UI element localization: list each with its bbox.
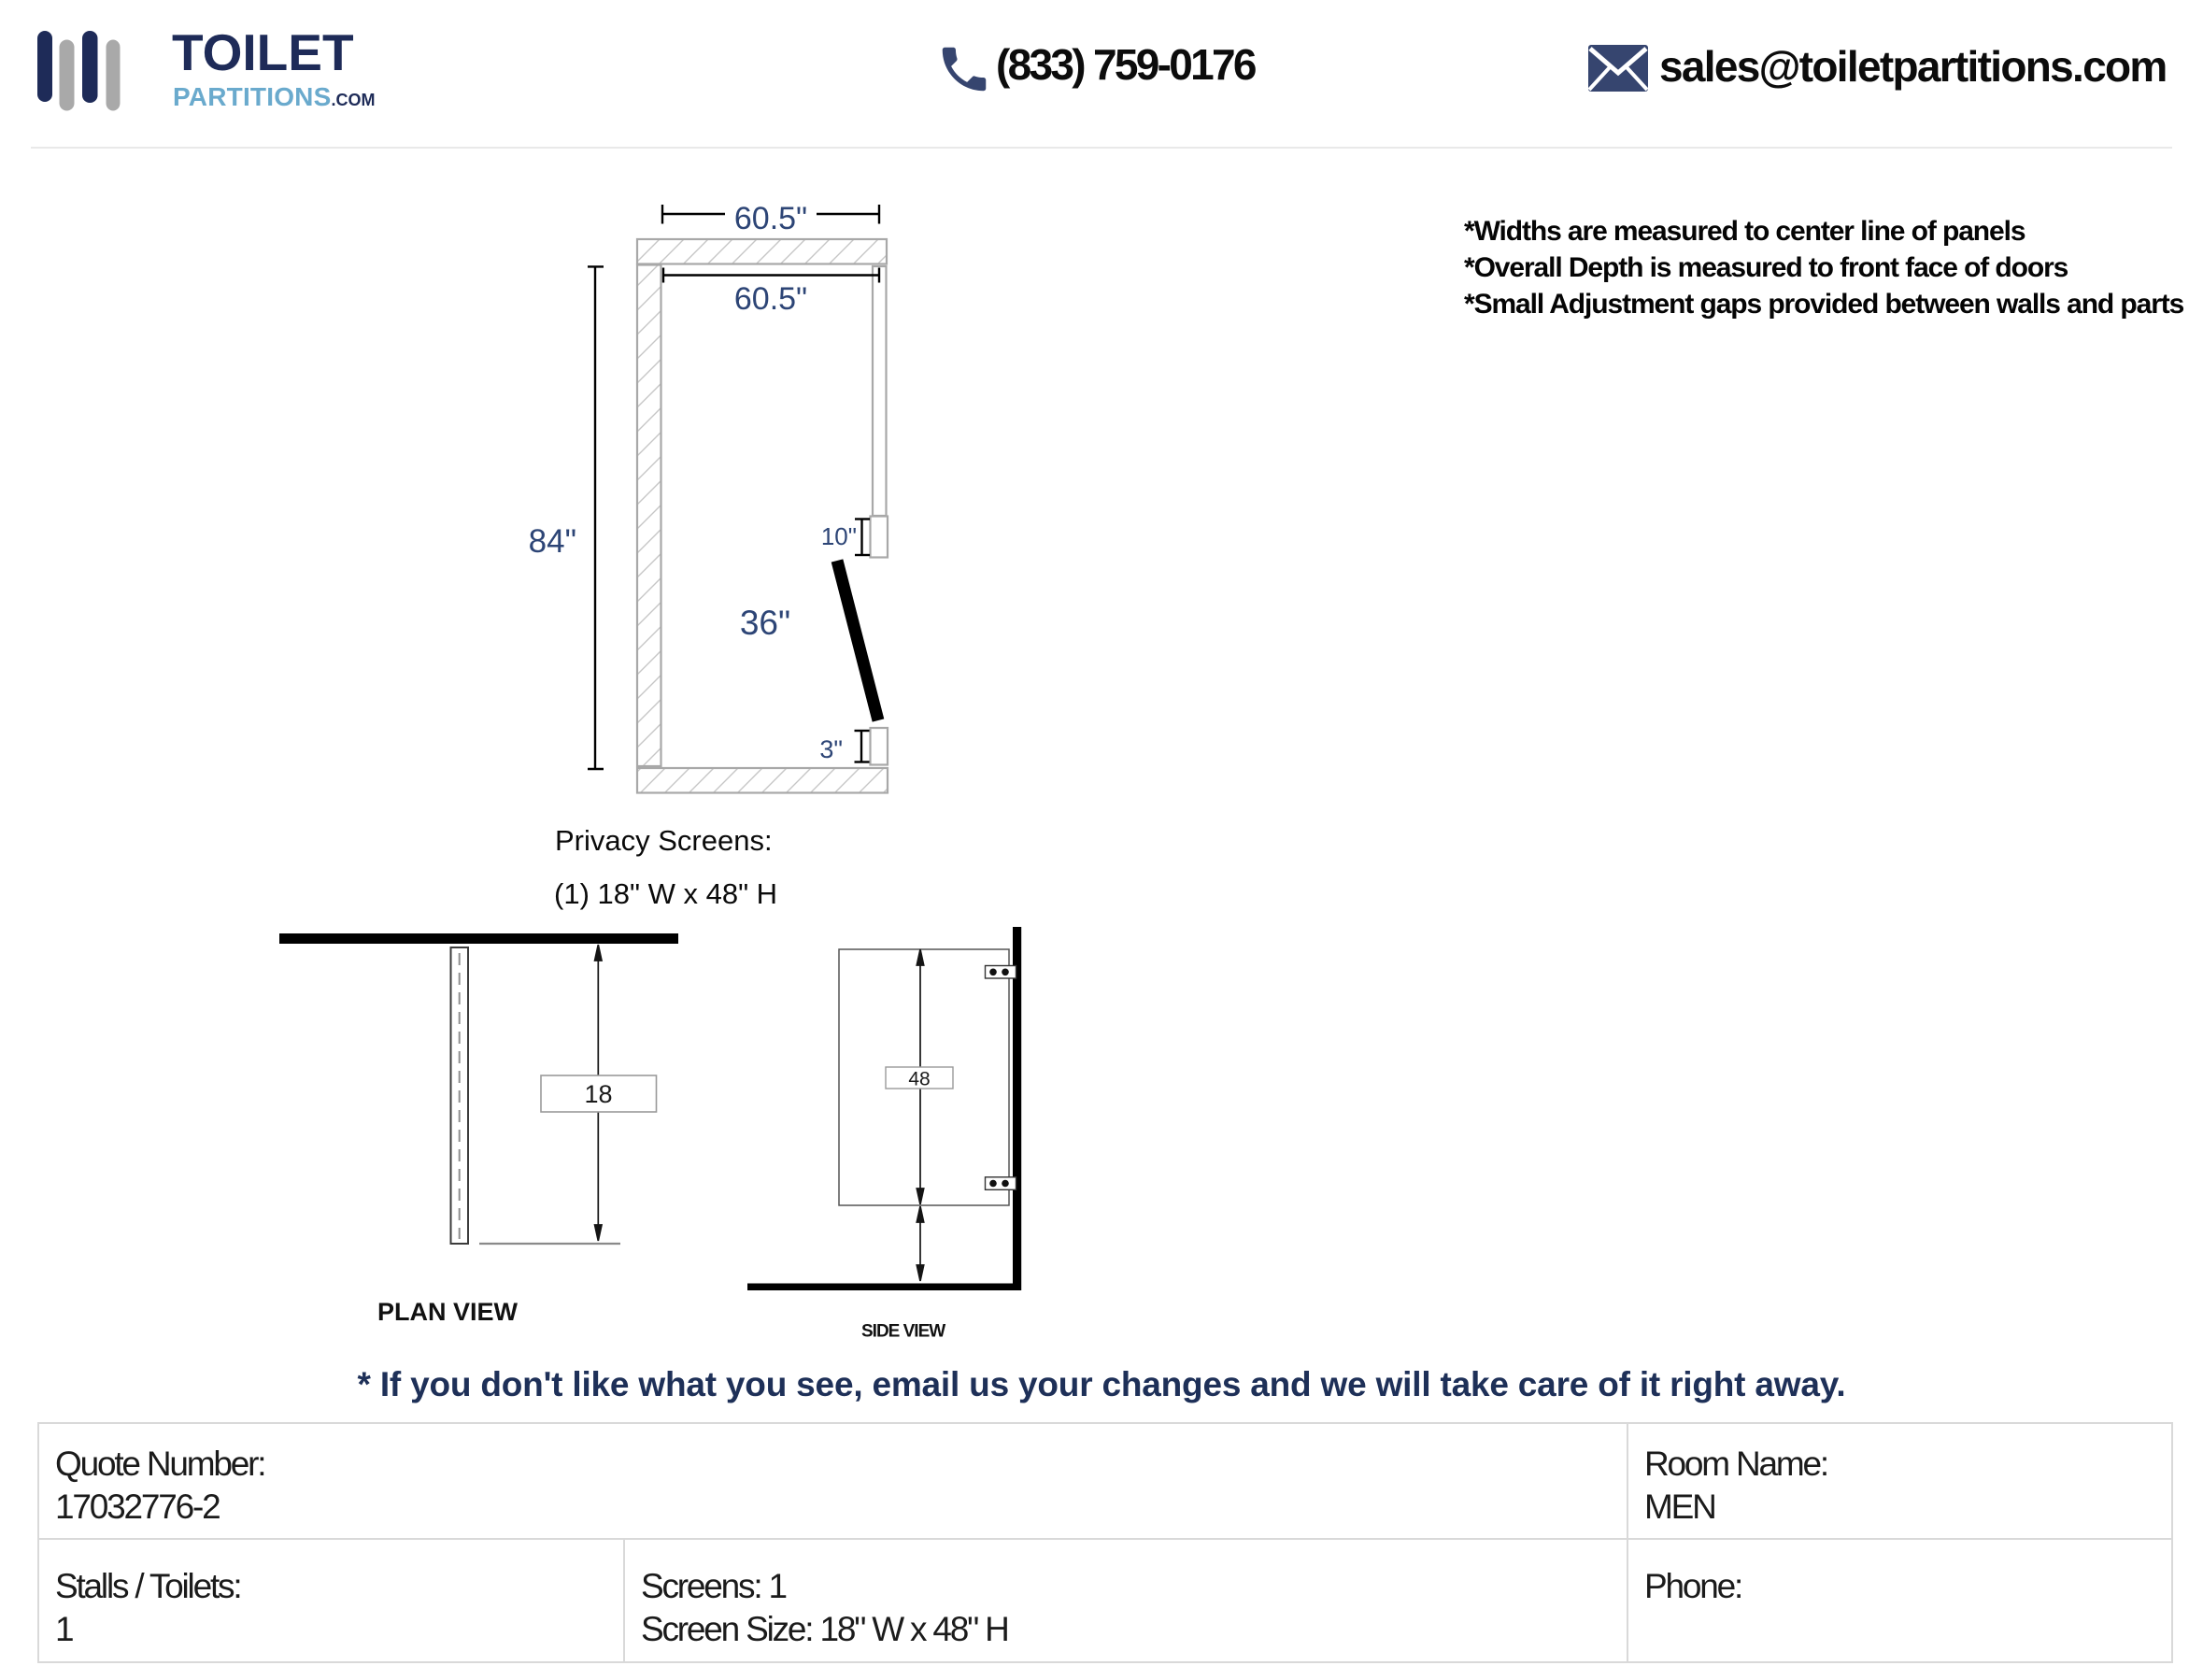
- svg-text:3": 3": [819, 735, 843, 763]
- svg-text:PLAN VIEW: PLAN VIEW: [377, 1298, 519, 1326]
- svg-text:84": 84": [529, 523, 576, 560]
- svg-text:48: 48: [908, 1069, 930, 1090]
- svg-text:10": 10": [821, 522, 857, 550]
- svg-text:60.5": 60.5": [734, 201, 807, 236]
- svg-text:60.5": 60.5": [734, 281, 807, 317]
- svg-text:36": 36": [740, 604, 790, 642]
- svg-text:18: 18: [584, 1080, 612, 1108]
- svg-text:SIDE VIEW: SIDE VIEW: [861, 1322, 945, 1342]
